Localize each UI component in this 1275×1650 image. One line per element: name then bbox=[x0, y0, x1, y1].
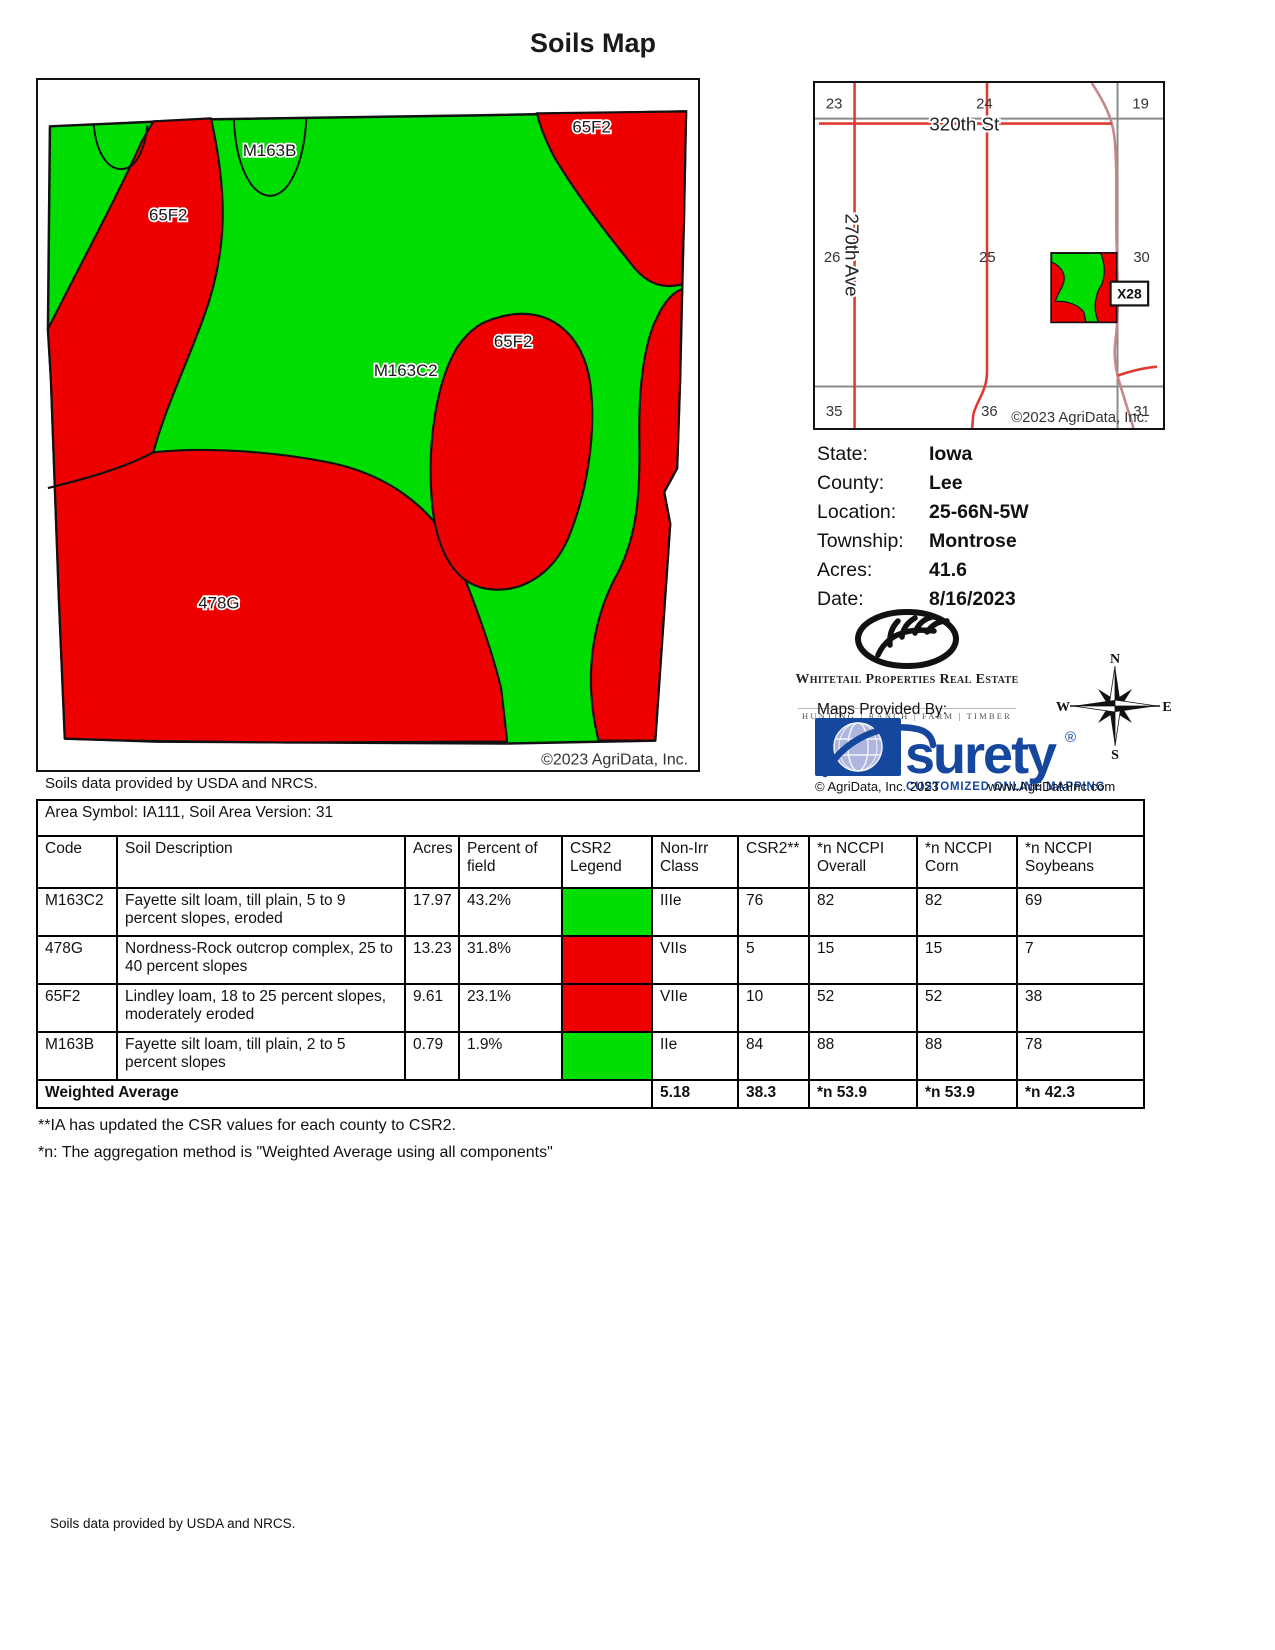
cell-code: M163B bbox=[37, 1032, 117, 1080]
location-map-copyright: ©2023 AgriData, Inc. bbox=[1011, 410, 1148, 426]
location-map-svg: 23 24 19 26 25 30 35 36 31 320th St 270t… bbox=[815, 83, 1163, 428]
agridata-website: www.AgriDataInc.com bbox=[988, 779, 1115, 794]
soil-label-478g: 478G bbox=[198, 593, 239, 612]
township-label: Township: bbox=[817, 527, 929, 556]
soil-table-section: Area Symbol: IA111, Soil Area Version: 3… bbox=[36, 799, 1145, 1109]
state-label: State: bbox=[817, 440, 929, 469]
cell-nccpi-overall: 88 bbox=[809, 1032, 917, 1080]
soil-label-m163c2: M163C2 bbox=[374, 361, 438, 380]
cell-nccpi-soybeans: 69 bbox=[1017, 888, 1144, 936]
cell-csr2: 5 bbox=[738, 936, 809, 984]
cell-csr2: 84 bbox=[738, 1032, 809, 1080]
county-value: Lee bbox=[929, 469, 963, 498]
cell-legend-swatch bbox=[562, 936, 652, 984]
compass-west: W bbox=[1056, 700, 1070, 715]
section-23: 23 bbox=[826, 97, 842, 113]
whitetail-name: Whitetail Properties Real Estate bbox=[782, 672, 1032, 688]
cell-percent: 1.9% bbox=[459, 1032, 562, 1080]
state-value: Iowa bbox=[929, 440, 972, 469]
property-info: State: Iowa County: Lee Location: 25-66N… bbox=[817, 440, 1029, 614]
soil-map-svg: 65F2 65F2 65F2 M163B M163C2 478G ©2023 A… bbox=[38, 80, 698, 770]
street-label-270th: 270th Ave bbox=[842, 213, 863, 296]
antler-icon bbox=[854, 608, 960, 670]
cell-legend-swatch bbox=[562, 888, 652, 936]
cell-percent: 23.1% bbox=[459, 984, 562, 1032]
col-code: Code bbox=[37, 836, 117, 888]
section-25: 25 bbox=[979, 250, 995, 266]
cell-code: M163C2 bbox=[37, 888, 117, 936]
location-value: 25-66N-5W bbox=[929, 498, 1029, 527]
cell-nccpi-soybeans: 38 bbox=[1017, 984, 1144, 1032]
section-26: 26 bbox=[824, 250, 840, 266]
cell-percent: 31.8% bbox=[459, 936, 562, 984]
cell-nccpi-soybeans: 7 bbox=[1017, 936, 1144, 984]
wa-nccpi-soybeans: *n 42.3 bbox=[1017, 1080, 1144, 1108]
info-row-township: Township: Montrose bbox=[817, 527, 1029, 556]
cell-nccpi-corn: 15 bbox=[917, 936, 1017, 984]
section-35: 35 bbox=[826, 404, 842, 420]
section-19: 19 bbox=[1132, 97, 1148, 113]
footnote-csr2: **IA has updated the CSR values for each… bbox=[38, 1112, 553, 1139]
col-csr2: CSR2** bbox=[738, 836, 809, 888]
cell-csr2: 10 bbox=[738, 984, 809, 1032]
soil-table: Area Symbol: IA111, Soil Area Version: 3… bbox=[36, 799, 1145, 1109]
info-row-county: County: Lee bbox=[817, 469, 1029, 498]
agridata-credit-line: © AgriData, Inc. 2023 www.AgriDataInc.co… bbox=[815, 779, 1115, 794]
cell-csr2: 76 bbox=[738, 888, 809, 936]
cell-description: Lindley loam, 18 to 25 percent slopes, m… bbox=[117, 984, 405, 1032]
wa-nccpi-overall: *n 53.9 bbox=[809, 1080, 917, 1108]
soil-label-65f2-topright: 65F2 bbox=[572, 117, 610, 136]
county-label: County: bbox=[817, 469, 929, 498]
cell-non-irr: VIIe bbox=[652, 984, 738, 1032]
compass-east: E bbox=[1162, 700, 1171, 715]
page-title: Soils Map bbox=[36, 28, 1150, 59]
cell-nccpi-overall: 82 bbox=[809, 888, 917, 936]
cell-description: Nordness-Rock outcrop complex, 25 to 40 … bbox=[117, 936, 405, 984]
cell-code: 478G bbox=[37, 936, 117, 984]
wa-csr2: 38.3 bbox=[738, 1080, 809, 1108]
cell-legend-swatch bbox=[562, 1032, 652, 1080]
cell-description: Fayette silt loam, till plain, 5 to 9 pe… bbox=[117, 888, 405, 936]
table-row: 478G Nordness-Rock outcrop complex, 25 t… bbox=[37, 936, 1144, 984]
parcel-inset-thumbnail bbox=[1051, 253, 1116, 322]
col-acres: Acres bbox=[405, 836, 459, 888]
weighted-average-row: Weighted Average 5.18 38.3 *n 53.9 *n 53… bbox=[37, 1080, 1144, 1108]
section-36: 36 bbox=[981, 404, 997, 420]
soil-map: 65F2 65F2 65F2 M163B M163C2 478G ©2023 A… bbox=[36, 78, 700, 772]
col-description: Soil Description bbox=[117, 836, 405, 888]
col-non-irr: Non-Irr Class bbox=[652, 836, 738, 888]
cell-nccpi-overall: 52 bbox=[809, 984, 917, 1032]
soil-map-copyright: ©2023 AgriData, Inc. bbox=[541, 751, 688, 768]
cell-nccpi-corn: 82 bbox=[917, 888, 1017, 936]
wa-non-irr: 5.18 bbox=[652, 1080, 738, 1108]
table-row: M163C2 Fayette silt loam, till plain, 5 … bbox=[37, 888, 1144, 936]
cell-non-irr: VIIs bbox=[652, 936, 738, 984]
section-24: 24 bbox=[976, 97, 992, 113]
col-csr2-legend: CSR2 Legend bbox=[562, 836, 652, 888]
info-row-acres: Acres: 41.6 bbox=[817, 556, 1029, 585]
info-row-state: State: Iowa bbox=[817, 440, 1029, 469]
cell-nccpi-overall: 15 bbox=[809, 936, 917, 984]
compass-rose: N S W E bbox=[1056, 652, 1174, 765]
cell-acres: 13.23 bbox=[405, 936, 459, 984]
location-label: Location: bbox=[817, 498, 929, 527]
cell-acres: 17.97 bbox=[405, 888, 459, 936]
info-row-location: Location: 25-66N-5W bbox=[817, 498, 1029, 527]
wa-nccpi-corn: *n 53.9 bbox=[917, 1080, 1017, 1108]
table-row: 65F2 Lindley loam, 18 to 25 percent slop… bbox=[37, 984, 1144, 1032]
township-value: Montrose bbox=[929, 527, 1017, 556]
surety-wordmark: surety bbox=[905, 725, 1057, 785]
cell-legend-swatch bbox=[562, 984, 652, 1032]
table-row: M163B Fayette silt loam, till plain, 2 t… bbox=[37, 1032, 1144, 1080]
cell-nccpi-soybeans: 78 bbox=[1017, 1032, 1144, 1080]
bottom-soils-note: Soils data provided by USDA and NRCS. bbox=[50, 1516, 295, 1531]
cell-percent: 43.2% bbox=[459, 888, 562, 936]
cell-description: Fayette silt loam, till plain, 2 to 5 pe… bbox=[117, 1032, 405, 1080]
footnotes: **IA has updated the CSR values for each… bbox=[38, 1112, 553, 1166]
cell-acres: 9.61 bbox=[405, 984, 459, 1032]
soil-label-65f2-left: 65F2 bbox=[149, 206, 187, 225]
cell-non-irr: IIe bbox=[652, 1032, 738, 1080]
parcel-tag-label: X28 bbox=[1117, 286, 1142, 302]
table-header-row: Code Soil Description Acres Percent of f… bbox=[37, 836, 1144, 888]
weighted-average-label: Weighted Average bbox=[37, 1080, 652, 1108]
col-percent: Percent of field bbox=[459, 836, 562, 888]
col-nccpi-overall: *n NCCPI Overall bbox=[809, 836, 917, 888]
soil-label-m163b: M163B bbox=[243, 141, 296, 160]
col-nccpi-soybeans: *n NCCPI Soybeans bbox=[1017, 836, 1144, 888]
footnote-aggregation: *n: The aggregation method is "Weighted … bbox=[38, 1139, 553, 1166]
col-nccpi-corn: *n NCCPI Corn bbox=[917, 836, 1017, 888]
cell-nccpi-corn: 52 bbox=[917, 984, 1017, 1032]
area-symbol-text: Area Symbol: IA111, Soil Area Version: 3… bbox=[37, 800, 1144, 836]
acres-value: 41.6 bbox=[929, 556, 967, 585]
agridata-copyright: © AgriData, Inc. 2023 bbox=[815, 779, 939, 794]
soils-data-note: Soils data provided by USDA and NRCS. bbox=[45, 775, 318, 792]
compass-south: S bbox=[1111, 748, 1119, 760]
soil-label-65f2-center: 65F2 bbox=[494, 332, 532, 351]
cell-code: 65F2 bbox=[37, 984, 117, 1032]
location-map: 23 24 19 26 25 30 35 36 31 320th St 270t… bbox=[813, 81, 1165, 430]
street-label-320th: 320th St bbox=[929, 113, 1000, 134]
compass-icon: N S W E bbox=[1056, 652, 1174, 760]
area-symbol-row: Area Symbol: IA111, Soil Area Version: 3… bbox=[37, 800, 1144, 836]
acres-label: Acres: bbox=[817, 556, 929, 585]
section-30: 30 bbox=[1133, 250, 1149, 266]
cell-acres: 0.79 bbox=[405, 1032, 459, 1080]
cell-nccpi-corn: 88 bbox=[917, 1032, 1017, 1080]
cell-non-irr: IIIe bbox=[652, 888, 738, 936]
compass-north: N bbox=[1110, 652, 1120, 667]
